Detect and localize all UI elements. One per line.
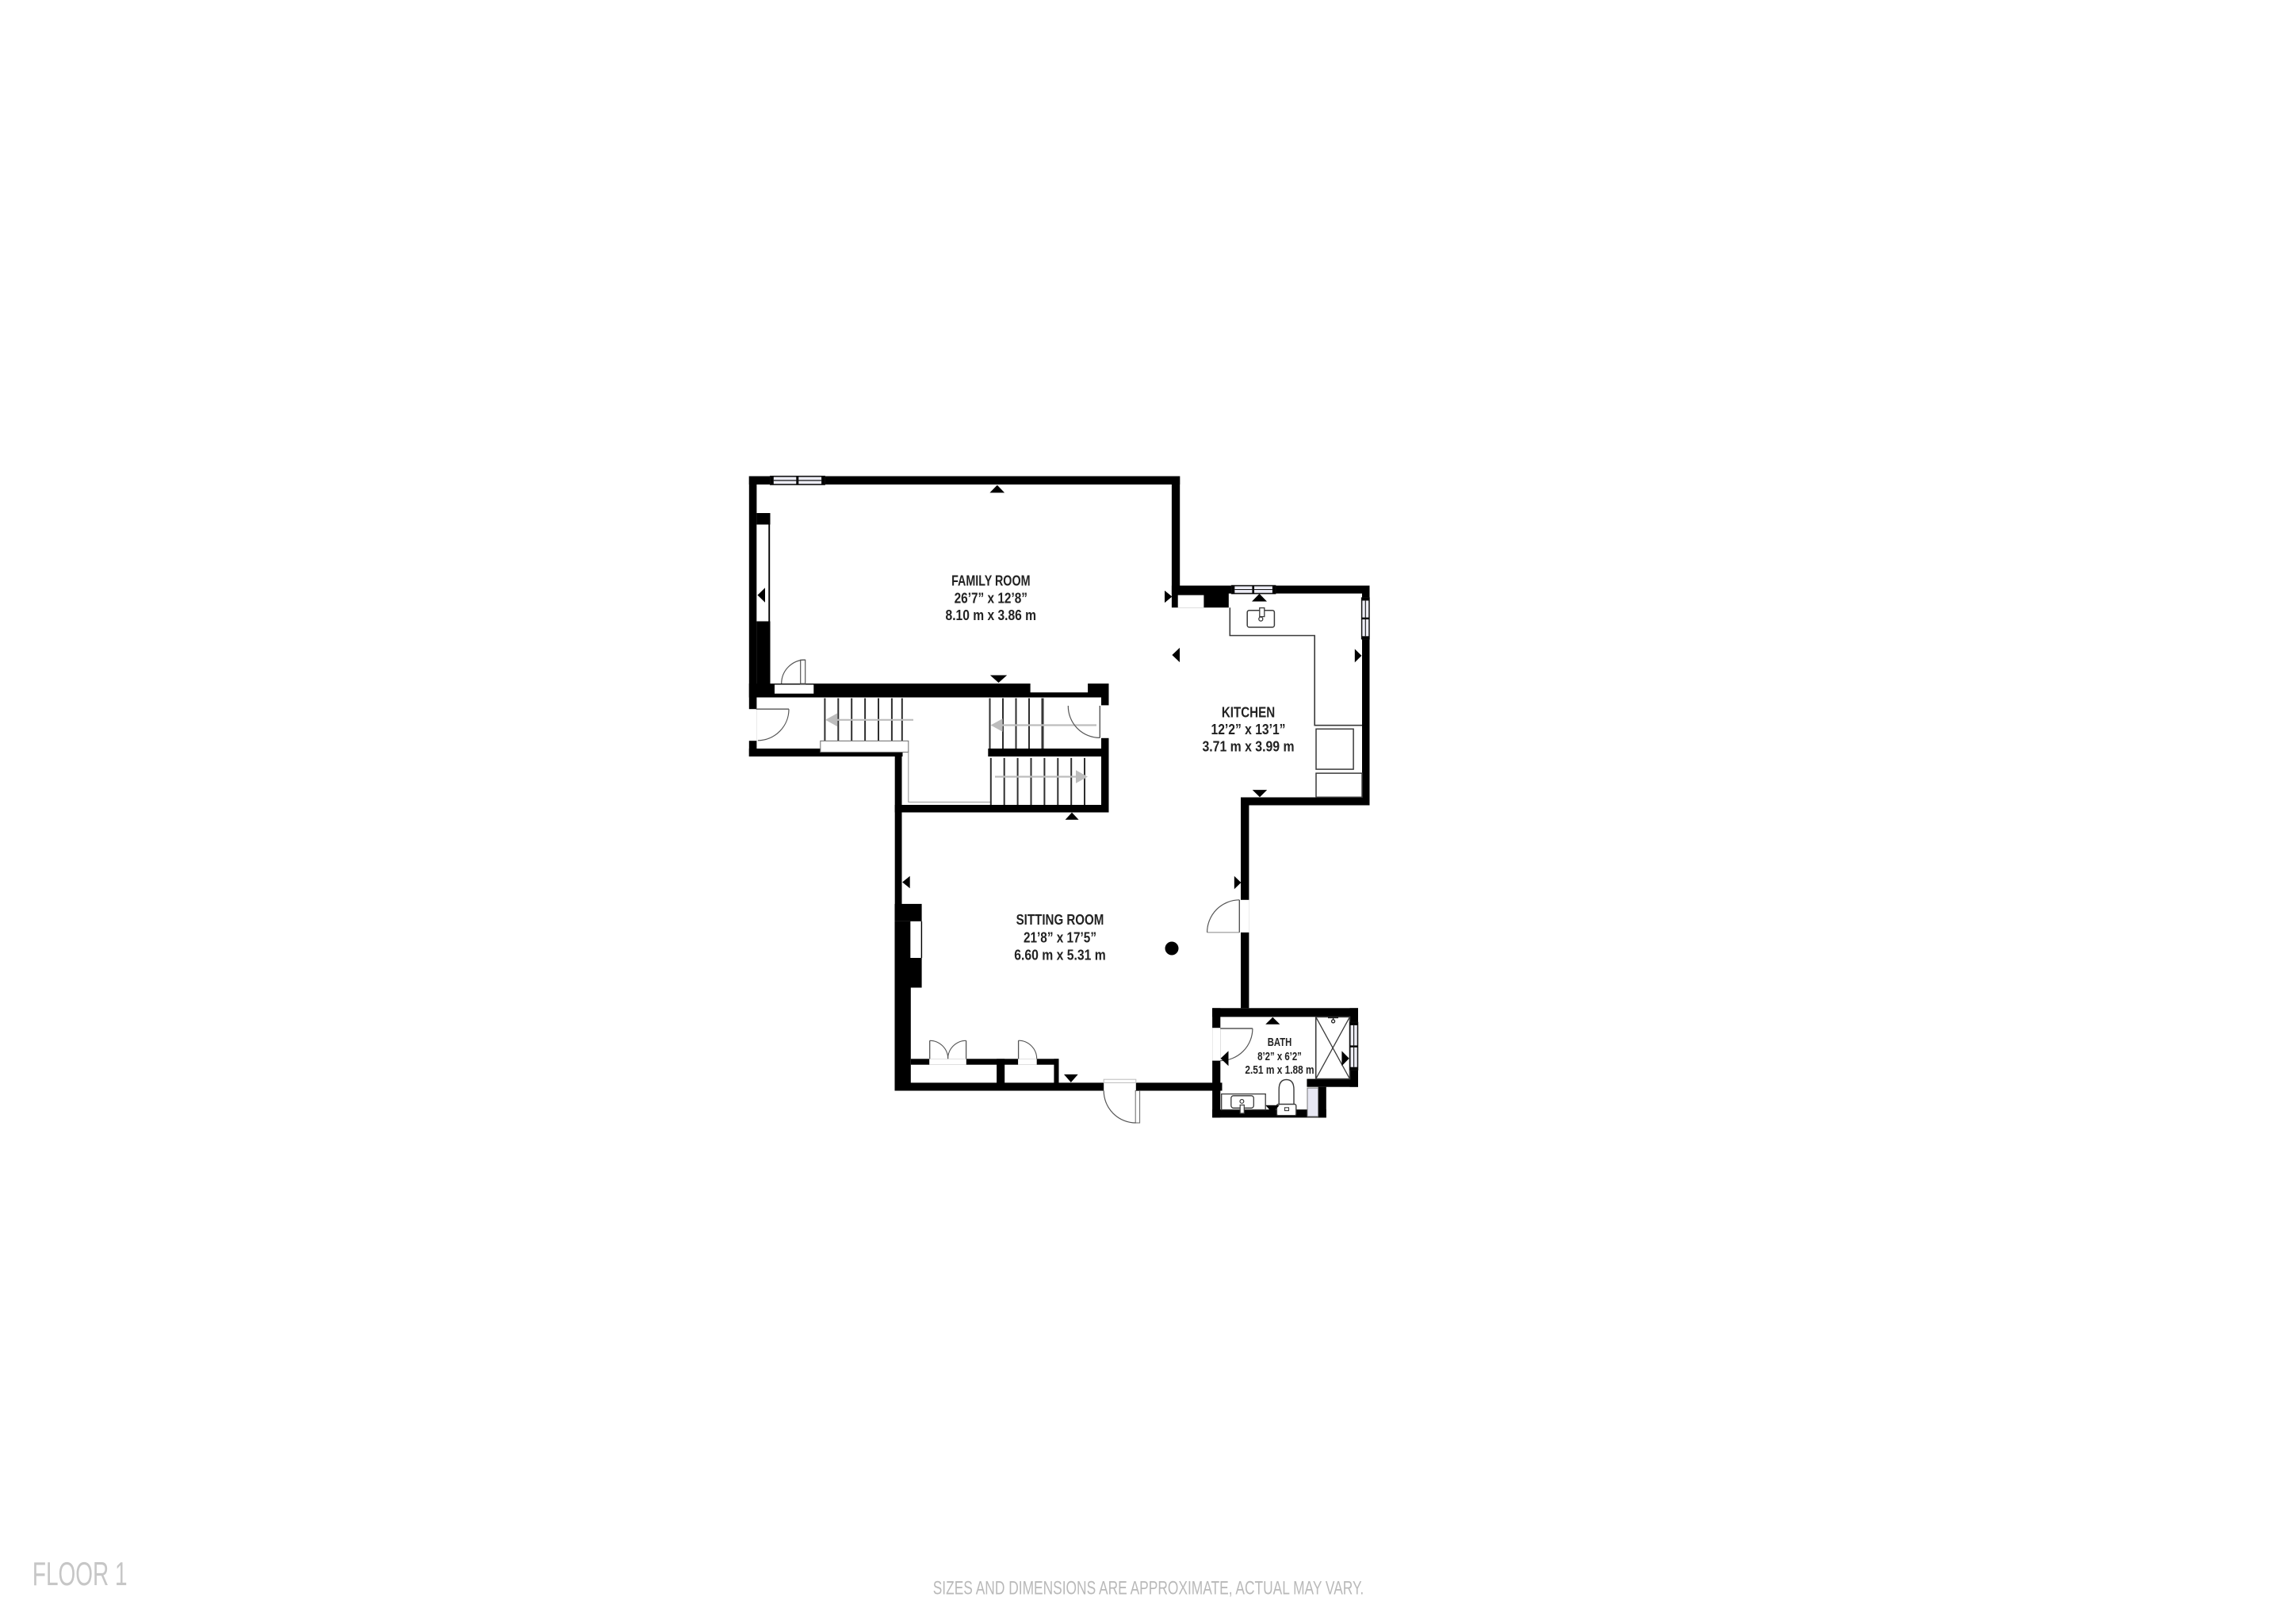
svg-text:26’7” x 12’8”: 26’7” x 12’8”: [955, 590, 1027, 606]
svg-text:21’8” x 17’5”: 21’8” x 17’5”: [1024, 929, 1096, 945]
svg-text:KITCHEN: KITCHEN: [1222, 705, 1275, 721]
svg-text:SITTING ROOM: SITTING ROOM: [1016, 912, 1104, 928]
svg-text:12’2” x 13’1”: 12’2” x 13’1”: [1211, 722, 1286, 737]
svg-text:8.10 m x 3.86 m: 8.10 m x 3.86 m: [946, 607, 1037, 623]
svg-text:2.51 m x 1.88 m: 2.51 m x 1.88 m: [1245, 1063, 1314, 1077]
svg-text:8’2” x 6’2”: 8’2” x 6’2”: [1257, 1050, 1302, 1063]
svg-text:FAMILY ROOM: FAMILY ROOM: [951, 573, 1030, 589]
svg-text:FLOOR 1: FLOOR 1: [33, 1555, 128, 1592]
svg-text:SIZES AND DIMENSIONS ARE APPRO: SIZES AND DIMENSIONS ARE APPROXIMATE, AC…: [933, 1578, 1364, 1599]
svg-text:6.60 m x 5.31 m: 6.60 m x 5.31 m: [1014, 947, 1106, 963]
svg-text:BATH: BATH: [1268, 1036, 1291, 1049]
svg-text:3.71 m x 3.99 m: 3.71 m x 3.99 m: [1203, 738, 1295, 754]
